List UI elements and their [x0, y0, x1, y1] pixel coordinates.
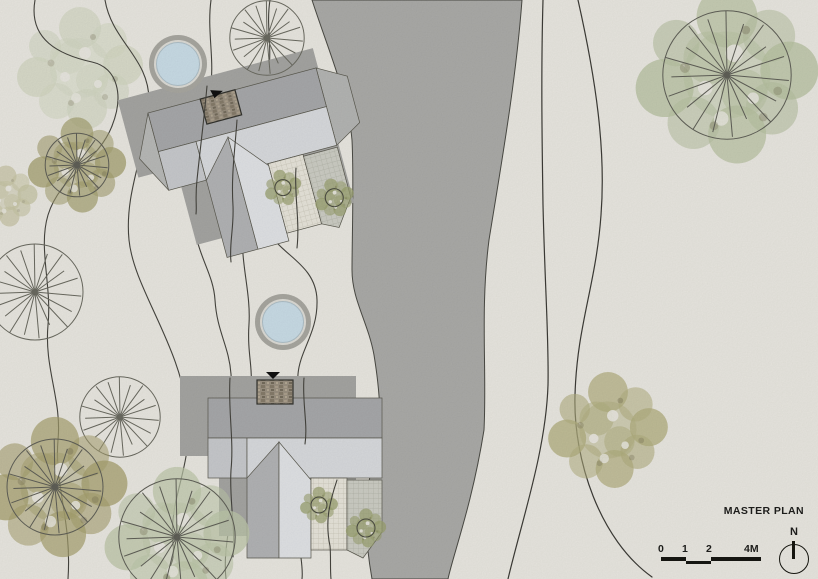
scale-bar-segment	[661, 557, 686, 561]
scale-tick-1: 1	[682, 543, 688, 555]
scale-tick-0: 0	[658, 543, 664, 555]
scale-tick-4m: 4M	[744, 543, 759, 555]
page-title: MASTER PLAN	[716, 505, 804, 517]
scale-bar-segment	[686, 561, 711, 565]
scale-bar: 0 1 2 4M	[661, 543, 761, 565]
north-circle-icon	[779, 544, 809, 574]
master-plan-drawing: MASTER PLAN 0 1 2 4M N	[0, 0, 818, 579]
scale-tick-2: 2	[706, 543, 712, 555]
north-indicator: N	[778, 526, 812, 576]
site-plan-canvas	[0, 0, 818, 579]
paper-grain	[0, 0, 818, 579]
north-label: N	[787, 526, 801, 538]
scale-bar-segment	[711, 557, 761, 561]
